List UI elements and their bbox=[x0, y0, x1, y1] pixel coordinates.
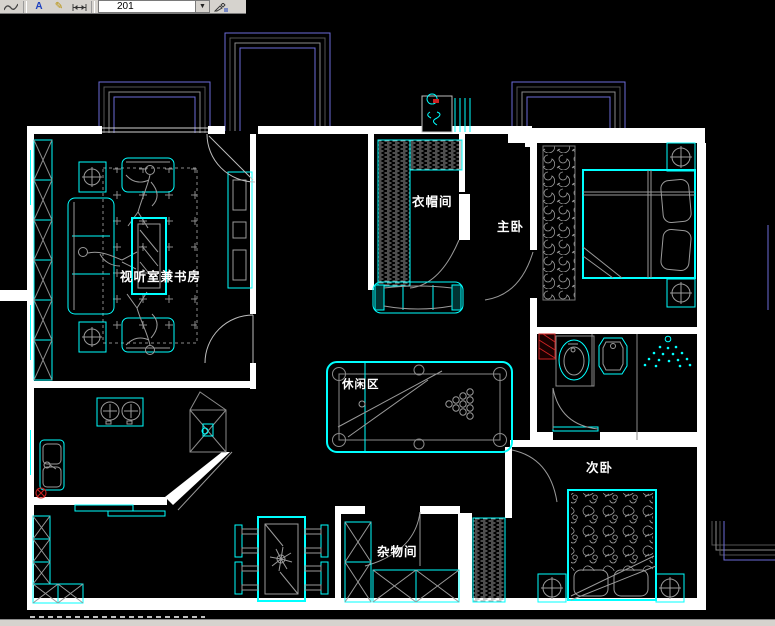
dimension-toolbar: A ✎ 201 ▼ bbox=[0, 0, 246, 14]
door-leaf bbox=[459, 194, 470, 240]
dimension-style-value: 201 bbox=[117, 1, 195, 12]
room-label-leisure: 休闲区 bbox=[341, 377, 380, 391]
red-column bbox=[539, 334, 555, 359]
toolbar-separator bbox=[23, 1, 27, 13]
water-heater bbox=[422, 94, 452, 132]
wardrobe bbox=[378, 140, 410, 286]
status-bar bbox=[0, 619, 775, 626]
dimension-update-icon[interactable] bbox=[212, 0, 230, 13]
decor-band bbox=[543, 146, 575, 300]
room-label-second: 次卧 bbox=[586, 460, 613, 475]
room-label-master: 主卧 bbox=[497, 219, 524, 234]
room-label-study: 视听室兼书房 bbox=[120, 269, 201, 284]
dimension-edit-icon[interactable]: ✎ bbox=[50, 0, 68, 13]
room-label-cloakroom: 衣帽间 bbox=[412, 194, 453, 209]
dimension-text-icon[interactable]: A bbox=[30, 0, 48, 13]
toolbar-separator bbox=[91, 1, 95, 13]
drawing-canvas[interactable]: 视听室兼书房 衣帽间 bbox=[0, 14, 775, 619]
chevron-down-icon[interactable]: ▼ bbox=[195, 1, 209, 12]
dimension-style-combobox[interactable]: 201 ▼ bbox=[98, 0, 210, 13]
spline-icon[interactable] bbox=[2, 0, 20, 13]
wardrobe bbox=[473, 518, 505, 602]
room-label-storage: 杂物间 bbox=[377, 544, 418, 559]
dimension-linear-icon[interactable] bbox=[70, 0, 88, 13]
wardrobe bbox=[410, 140, 462, 170]
